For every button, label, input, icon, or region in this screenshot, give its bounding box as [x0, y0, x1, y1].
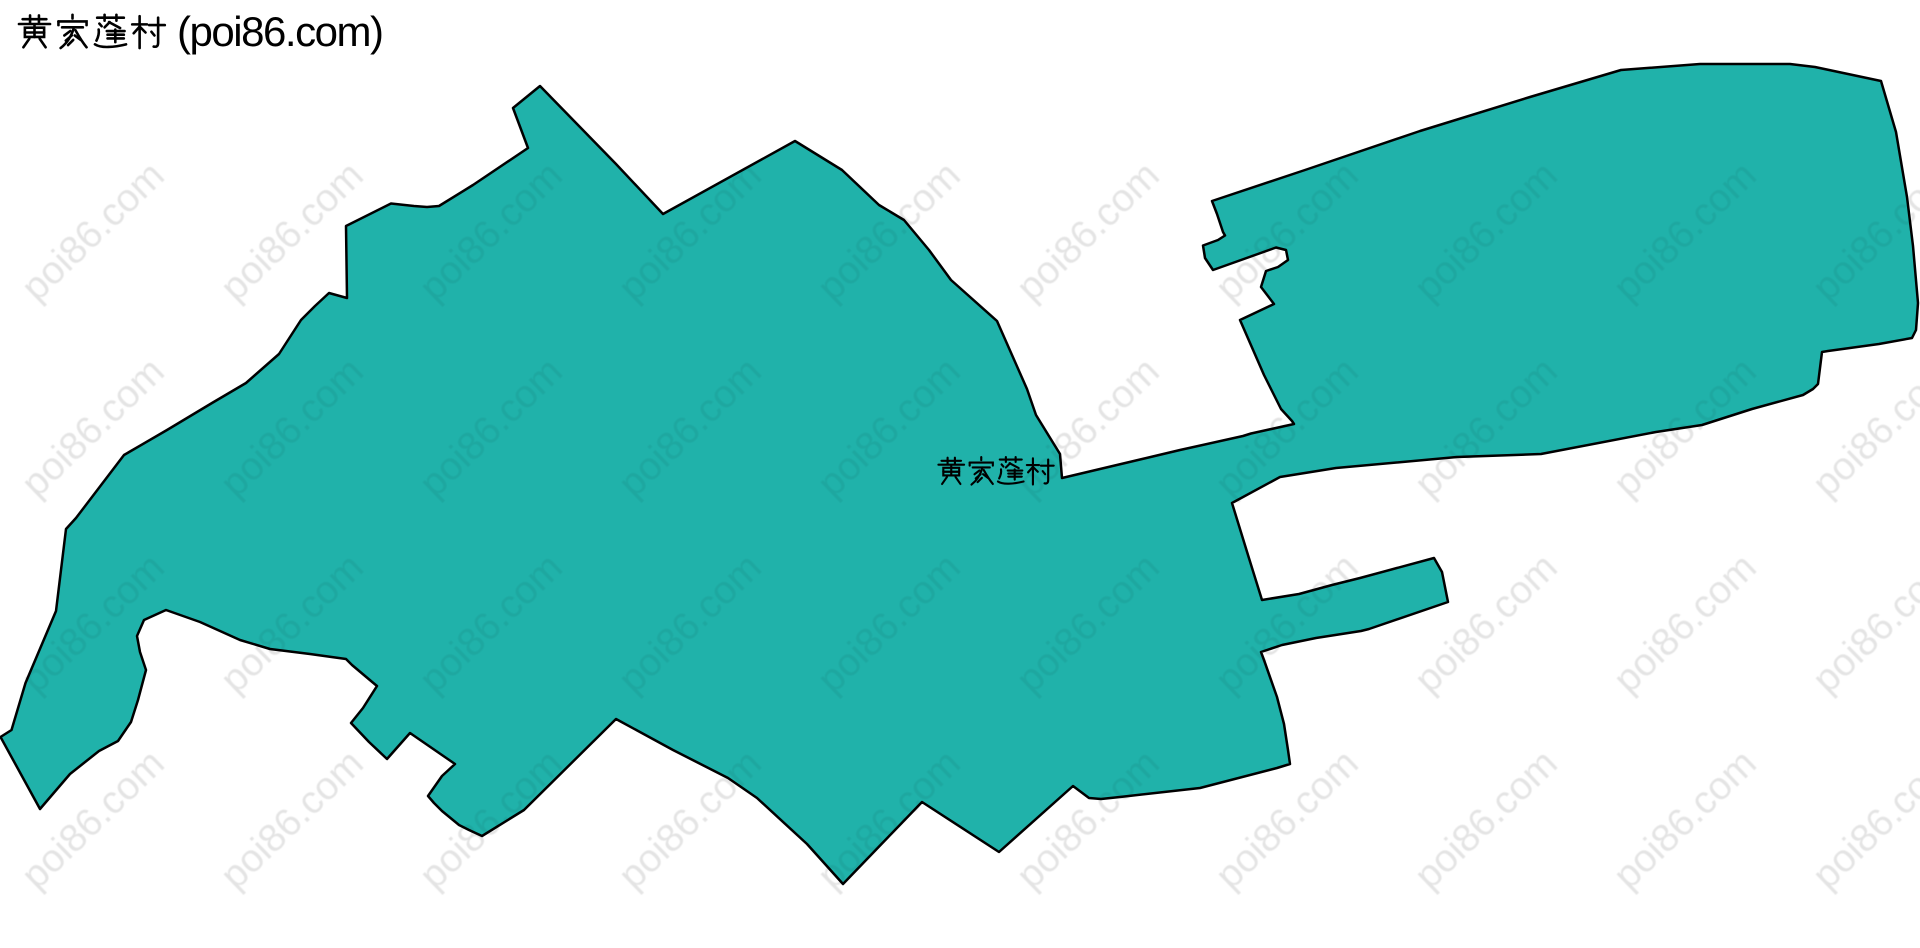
svg-text:(poi86.com): (poi86.com) [177, 8, 384, 55]
